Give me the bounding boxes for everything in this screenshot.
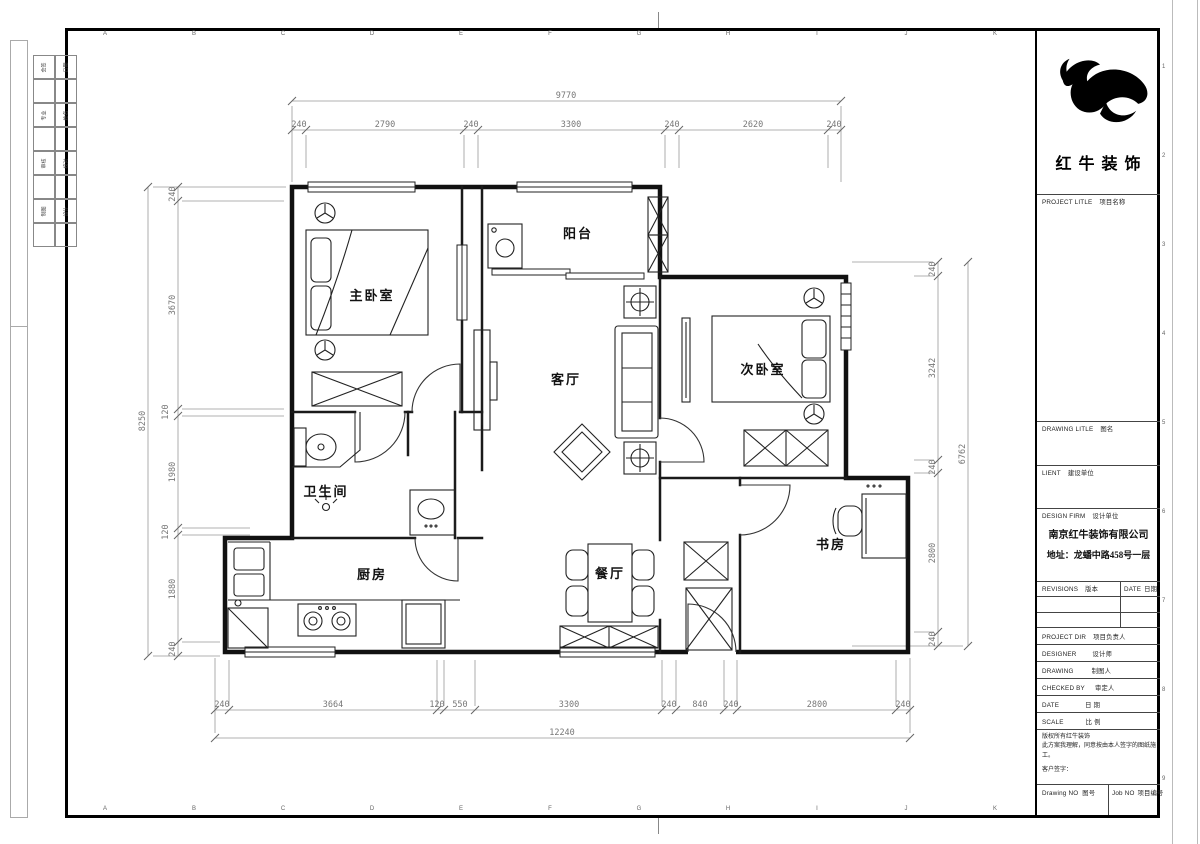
design-firm-field: DESIGN FIRM设计单位 bbox=[1042, 511, 1118, 520]
drawing-by-field: DRAWING制图人 bbox=[1042, 666, 1111, 675]
dining-table bbox=[588, 544, 632, 622]
dim-label: 240 bbox=[928, 261, 938, 276]
side-table-lamp-icon bbox=[624, 286, 656, 474]
company-brand: 红牛装饰 bbox=[1037, 150, 1160, 174]
desk-chair bbox=[833, 506, 862, 536]
dim-label: 6762 bbox=[958, 444, 968, 464]
signature-cell-empty bbox=[33, 79, 55, 103]
mirror-panel bbox=[682, 318, 690, 402]
dim-label: 3242 bbox=[928, 358, 938, 378]
dim-label: 1980 bbox=[168, 462, 178, 482]
dim-label: 9770 bbox=[556, 91, 576, 101]
grid-number: 1 bbox=[1162, 64, 1165, 70]
furniture bbox=[228, 197, 906, 650]
grid-number: 7 bbox=[1162, 598, 1165, 604]
project-title-field: PROJECT LITLE项目名称 bbox=[1042, 197, 1125, 206]
window-master-top bbox=[308, 182, 415, 192]
dim-label: 3664 bbox=[323, 700, 343, 710]
grid-number: 8 bbox=[1162, 687, 1165, 693]
grid-number: 3 bbox=[1162, 242, 1165, 248]
interior-walls bbox=[292, 187, 846, 652]
grid-number: 9 bbox=[1162, 776, 1165, 782]
toilet bbox=[294, 428, 336, 466]
signature-cell-empty bbox=[33, 223, 55, 247]
kitchen-cabinet bbox=[402, 600, 445, 648]
dim-label: 240 bbox=[928, 631, 938, 646]
grid-number: 5 bbox=[1162, 420, 1165, 426]
copyright-note: 版权所有红牛装饰 此方案我理解，同意按由本人签字的图纸施工。 bbox=[1042, 733, 1157, 761]
sheet-left-margin-strip bbox=[10, 40, 28, 818]
dim-label: 2790 bbox=[375, 120, 395, 130]
dim-label: 3300 bbox=[559, 700, 579, 710]
dining-chairs bbox=[566, 550, 654, 616]
door-master-bedroom bbox=[412, 364, 460, 412]
job-no-field: Job NO项目编号 bbox=[1112, 788, 1164, 797]
project-dir-field: PROJECT DIR项目负责人 bbox=[1042, 632, 1126, 641]
date-field: DATE日 期 bbox=[1042, 700, 1100, 709]
kitchen-sink bbox=[234, 548, 264, 606]
signature-cell: 审核 bbox=[33, 151, 55, 175]
signature-cell-empty bbox=[33, 175, 55, 199]
room-label-master-bedroom: 主卧室 bbox=[349, 288, 394, 303]
dining-cabinet bbox=[560, 626, 658, 648]
dim-label: 1880 bbox=[168, 579, 178, 599]
tv-cabinet bbox=[474, 330, 497, 430]
ceiling-fan-icon bbox=[804, 288, 824, 424]
door-second-bedroom bbox=[660, 418, 704, 462]
stove bbox=[298, 604, 356, 636]
sheet-center-tick-top bbox=[658, 12, 659, 28]
sheet-edge-line-outer bbox=[1197, 0, 1198, 844]
door-study bbox=[740, 485, 790, 535]
scale-field: SCALE比 例 bbox=[1042, 717, 1101, 726]
room-label-study: 书房 bbox=[816, 537, 846, 552]
client-signature-label: 客户签字： bbox=[1042, 766, 1157, 775]
wardrobe-master bbox=[312, 372, 402, 406]
checked-by-field: CHECKED BY审定人 bbox=[1042, 683, 1114, 692]
bed-master bbox=[306, 230, 428, 335]
dim-label: 840 bbox=[692, 700, 707, 710]
vanity-basin bbox=[410, 490, 455, 535]
hall-cabinet bbox=[684, 542, 732, 650]
door-bathroom bbox=[355, 412, 405, 462]
sofa bbox=[615, 326, 658, 438]
desk-dots bbox=[867, 485, 881, 487]
room-label-kitchen: 厨房 bbox=[357, 567, 387, 582]
room-label-balcony: 阳台 bbox=[563, 226, 593, 241]
signature-cell: 制图 bbox=[33, 199, 55, 223]
drawing-no-field: Drawing NO图号 bbox=[1042, 788, 1095, 797]
sheet-center-tick-bottom bbox=[658, 818, 659, 834]
signature-cell: 会签 bbox=[33, 55, 55, 79]
dim-label: 240 bbox=[291, 120, 306, 130]
room-label-bathroom: 卫生间 bbox=[303, 484, 348, 499]
dim-label: 240 bbox=[168, 186, 178, 201]
washing-machine bbox=[488, 224, 522, 268]
dim-label: 240 bbox=[463, 120, 478, 130]
dim-label: 240 bbox=[928, 459, 938, 474]
company-name: 南京红牛装饰有限公司 bbox=[1037, 526, 1160, 541]
wall-openings bbox=[490, 272, 736, 657]
wardrobe-second bbox=[744, 430, 828, 466]
room-label-second-bedroom: 次卧室 bbox=[740, 362, 785, 377]
signature-cell-empty bbox=[33, 127, 55, 151]
company-logo-icon bbox=[1051, 50, 1149, 142]
dim-label: 240 bbox=[214, 700, 229, 710]
dim-label: 12240 bbox=[549, 728, 575, 738]
door-kitchen bbox=[415, 538, 458, 581]
dim-label: 3670 bbox=[168, 295, 178, 315]
title-block: 红牛装饰 PROJECT LITLE项目名称 DRAWING LITLE图名 L… bbox=[1035, 28, 1160, 818]
dim-label: 2620 bbox=[743, 120, 763, 130]
doors bbox=[355, 364, 790, 652]
drawing-title-field: DRAWING LITLE图名 bbox=[1042, 424, 1113, 433]
floor-plan: 9770 240 2790 240 3300 240 2620 240 8250… bbox=[65, 28, 1035, 818]
dim-label: 240 bbox=[664, 120, 679, 130]
windows bbox=[245, 182, 851, 657]
dim-label: 2800 bbox=[807, 700, 827, 710]
company-address: 地址：龙蟠中路458号一层 bbox=[1037, 548, 1160, 561]
room-label-dining-room: 餐厅 bbox=[594, 566, 625, 581]
dim-label: 120 bbox=[161, 404, 171, 419]
dim-label: 240 bbox=[168, 641, 178, 656]
dim-label: 240 bbox=[723, 700, 738, 710]
sheet-edge-line bbox=[1172, 0, 1173, 844]
dim-label: 240 bbox=[826, 120, 841, 130]
revisions-header: REVISIONS版本 bbox=[1042, 584, 1098, 593]
dim-label: 8250 bbox=[138, 411, 148, 431]
coffee-table bbox=[554, 424, 610, 480]
grid-number: 2 bbox=[1162, 153, 1165, 159]
grid-numbers-right: 123456789 bbox=[1162, 0, 1172, 844]
desk bbox=[862, 494, 906, 558]
window-second-bedroom-right bbox=[841, 283, 851, 350]
bed-second bbox=[712, 316, 830, 402]
grid-number: 6 bbox=[1162, 509, 1165, 515]
window-master-interior-panel bbox=[457, 245, 467, 320]
grid-number: 4 bbox=[1162, 331, 1165, 337]
client-field: LIENT建设单位 bbox=[1042, 468, 1094, 477]
room-label-living-room: 客厅 bbox=[551, 372, 581, 387]
date-column-header: DATE日期 bbox=[1124, 584, 1157, 593]
dim-label: 120 bbox=[161, 524, 171, 539]
dim-label: 3300 bbox=[561, 120, 581, 130]
dim-label: 2800 bbox=[928, 543, 938, 563]
designer-field: DESIGNER设计师 bbox=[1042, 649, 1112, 658]
dim-label: 550 bbox=[452, 700, 467, 710]
window-balcony-top bbox=[517, 182, 632, 192]
dim-label: 240 bbox=[895, 700, 910, 710]
dim-label: 240 bbox=[661, 700, 676, 710]
signature-cell: 专业 bbox=[33, 103, 55, 127]
dim-label: 120 bbox=[429, 700, 444, 710]
